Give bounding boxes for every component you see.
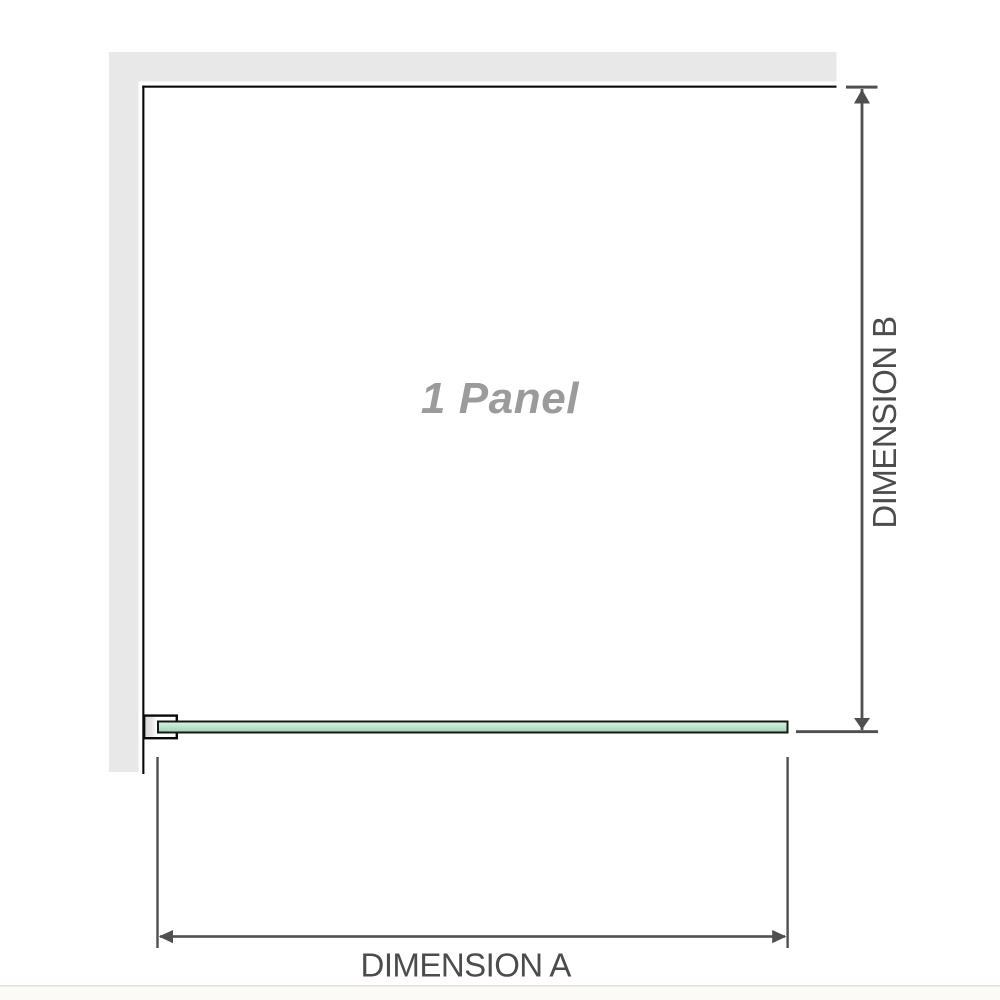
svg-text:DIMENSION A: DIMENSION A bbox=[361, 947, 572, 984]
svg-text:DIMENSION B: DIMENSION B bbox=[866, 316, 903, 528]
svg-text:1 Panel: 1 Panel bbox=[421, 374, 579, 423]
